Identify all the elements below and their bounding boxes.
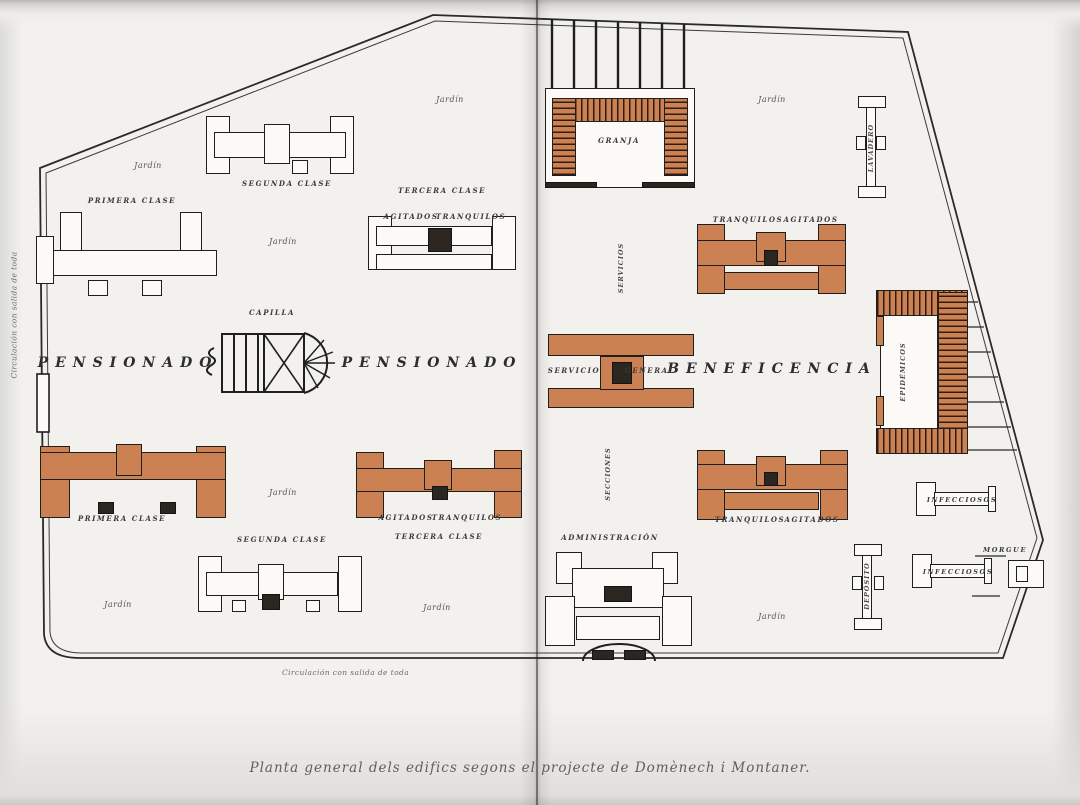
building-block	[852, 576, 862, 590]
note-circulacion-bottom: Circulación con salida de toda	[282, 668, 409, 677]
label-capilla: CAPILLA	[249, 308, 295, 317]
building-block	[376, 254, 492, 270]
building-block	[338, 556, 362, 612]
building-block	[552, 98, 576, 176]
label-tercera-clase-bottom: TERCERA CLASE	[395, 532, 483, 541]
label-primera-clase-bottom: PRIMERA CLASE	[78, 514, 166, 523]
label-infecciosos-2: INFECCIOSOS	[923, 568, 993, 576]
label-administracion: ADMINISTRACIÓN	[561, 533, 658, 542]
building-block	[160, 502, 176, 514]
building-block	[662, 596, 692, 646]
building-block	[604, 586, 632, 602]
label-epidemicos-vertical: EPIDÉMICOS	[899, 342, 907, 401]
label-jardin: Jardín	[436, 95, 464, 104]
label-agitados-ne: AGITADOS	[784, 215, 839, 224]
label-tranquilos-sw: TRANQUILOS	[432, 513, 502, 522]
label-tranquilos-top: TRANQUILOS	[436, 212, 506, 221]
building-block	[545, 596, 575, 646]
label-jardin: Jardín	[134, 161, 162, 170]
building-block	[576, 616, 660, 640]
label-jardin: Jardín	[758, 612, 786, 621]
zone-label-beneficencia: BENEFICENCIA	[667, 361, 877, 377]
building-block	[98, 502, 114, 514]
chapel-drawing	[207, 333, 335, 393]
building-block	[545, 182, 597, 188]
label-axis-servicios: SERVICIOS	[617, 243, 625, 293]
building-block	[232, 600, 246, 612]
label-agitados-sw: AGITADOS	[379, 513, 434, 522]
label-servicio: SERVICIO	[548, 366, 600, 375]
building-block	[548, 388, 694, 408]
label-tranquilos-se: TRANQUILOS	[715, 515, 785, 524]
building-block	[262, 594, 280, 610]
building-block	[428, 228, 452, 252]
label-tercera-clase-top: TERCERA CLASE	[398, 186, 486, 195]
label-agitados-top: AGITADOS	[384, 212, 439, 221]
building-block	[548, 334, 694, 356]
building-block	[60, 212, 82, 254]
label-jardin: Jardín	[269, 237, 297, 246]
building-block	[854, 544, 882, 556]
building-block	[858, 96, 886, 108]
building-block	[1016, 566, 1028, 582]
label-segunda-clase-bottom: SEGUNDA CLASE	[237, 535, 327, 544]
label-lavadero-vertical: LAVADERO	[867, 124, 875, 172]
building-block	[724, 272, 819, 290]
label-tranquilos-ne: TRANQUILOS	[713, 215, 783, 224]
building-block	[664, 98, 688, 176]
label-deposito-vertical: DEPÓSITO	[863, 562, 871, 609]
building-block	[36, 236, 54, 284]
building-block	[874, 576, 884, 590]
building-block	[624, 650, 646, 660]
label-jardin: Jardín	[423, 603, 451, 612]
building-block	[764, 250, 778, 266]
building-block	[492, 216, 516, 270]
label-primera-clase-top: PRIMERA CLASE	[88, 196, 176, 205]
label-general: GENERAL	[625, 366, 675, 375]
building-block	[876, 428, 968, 454]
building-block	[876, 136, 886, 150]
building-block	[724, 492, 819, 510]
label-infecciosos-1: INFECCIOSOS	[927, 496, 997, 504]
building-block	[856, 136, 866, 150]
building-block	[180, 212, 202, 254]
page-caption: Planta general dels edifics segons el pr…	[250, 760, 811, 776]
label-granja: GRANJA	[598, 136, 640, 145]
building-block	[858, 186, 886, 198]
label-jardin: Jardín	[269, 488, 297, 497]
building-block	[292, 160, 308, 174]
building-block	[306, 600, 320, 612]
building-block	[880, 312, 938, 430]
label-jardin: Jardín	[758, 95, 786, 104]
left-gate	[37, 374, 49, 432]
label-axis-secciones: SECCIONES	[604, 447, 612, 500]
label-morgue: MORGUE	[983, 546, 1027, 554]
zone-label-pensionado-left: PENSIONADO	[38, 355, 219, 371]
label-jardin: Jardín	[104, 600, 132, 609]
building-block	[432, 486, 448, 500]
building-block	[854, 618, 882, 630]
building-block	[592, 650, 614, 660]
note-circulacion-left: Circulación con salida de toda	[10, 251, 19, 378]
zone-label-pensionado-right: PENSIONADO	[342, 355, 523, 371]
building-block	[142, 280, 162, 296]
building-block	[876, 396, 884, 426]
building-block	[52, 250, 217, 276]
label-agitados-se: AGITADOS	[785, 515, 840, 524]
building-block	[876, 316, 884, 346]
building-block	[764, 472, 778, 486]
scanned-book-page: PENSIONADO PENSIONADO BENEFICENCIA PRIME…	[0, 0, 1080, 805]
building-block	[642, 182, 695, 188]
building-block	[116, 444, 142, 476]
label-segunda-clase-top: SEGUNDA CLASE	[242, 179, 332, 188]
building-block	[264, 124, 290, 164]
building-block	[88, 280, 108, 296]
